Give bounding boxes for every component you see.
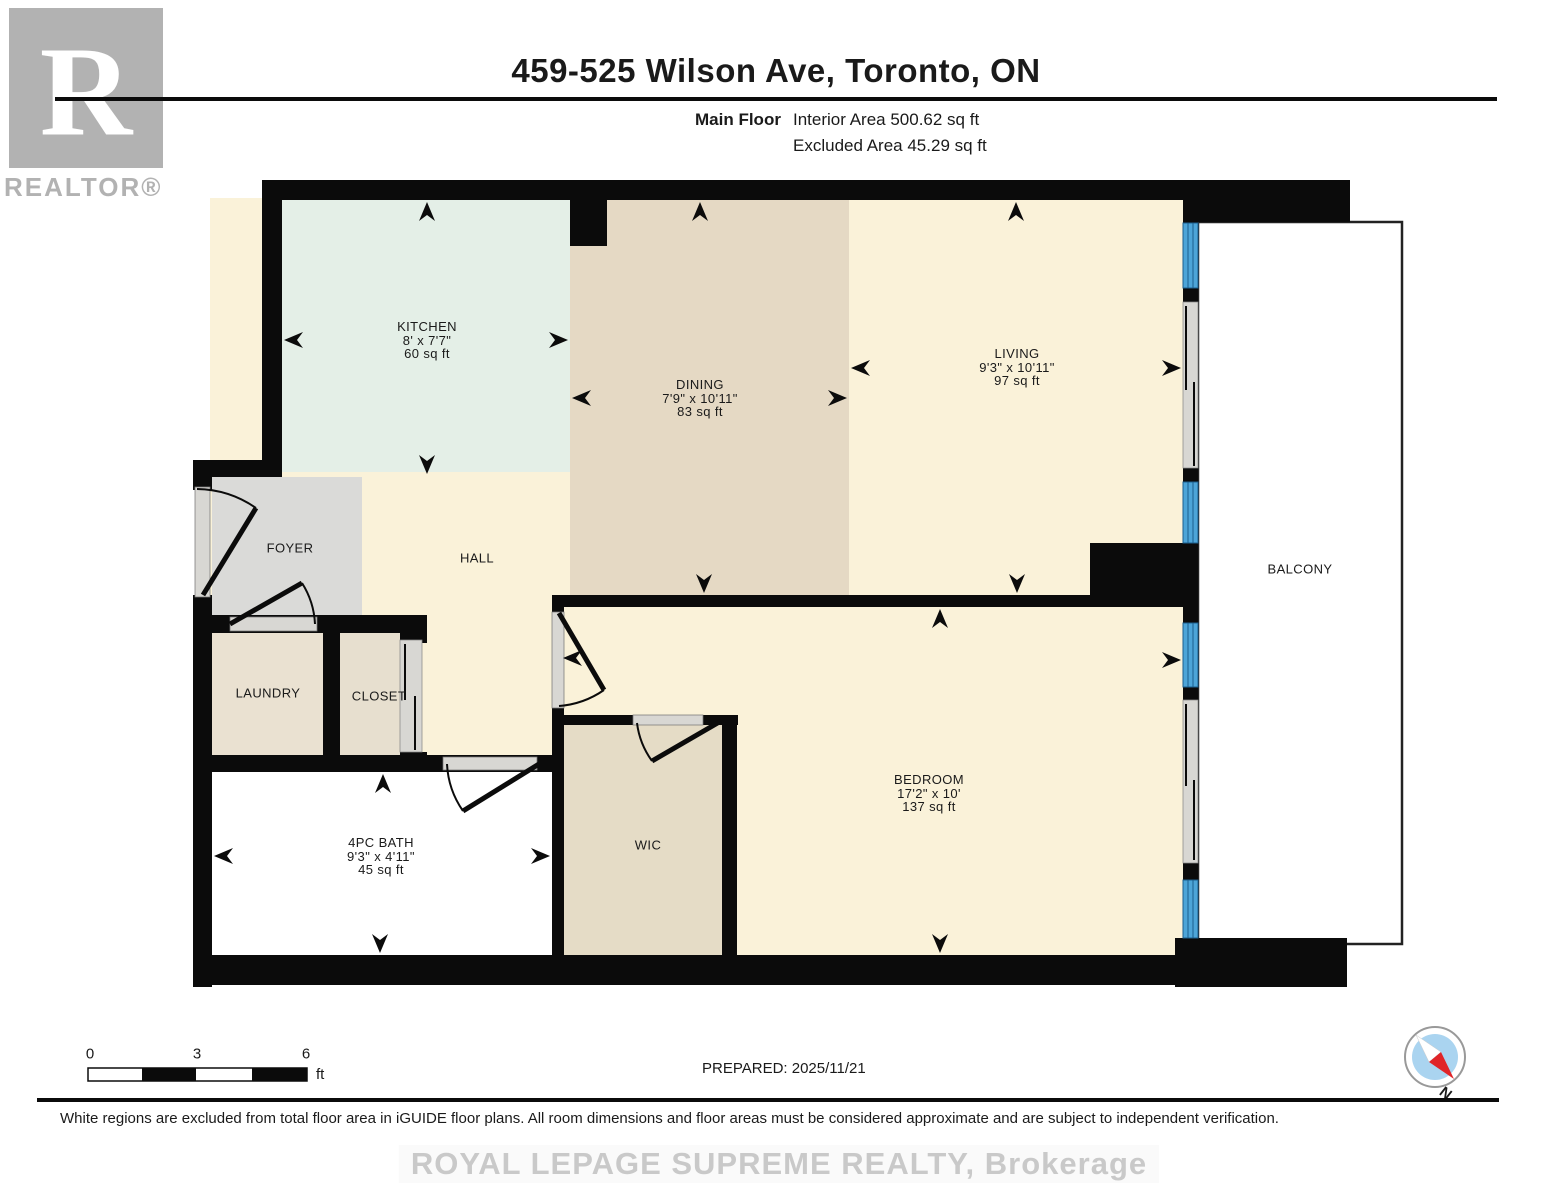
realtor-logo-letter: R — [40, 19, 132, 166]
footer-divider — [37, 1098, 1499, 1102]
hall-name: HALL — [460, 551, 494, 565]
disclaimer-text: White regions are excluded from total fl… — [60, 1110, 1279, 1127]
dining-name: DINING — [662, 378, 738, 392]
wic-name: WIC — [635, 838, 661, 852]
interior-area: Interior Area 500.62 sq ft — [793, 110, 979, 130]
excluded-area: Excluded Area 45.29 sq ft — [793, 136, 987, 156]
balcony-name: BALCONY — [1268, 562, 1333, 576]
dining-area: 83 sq ft — [662, 405, 738, 419]
prepared-date: PREPARED: 2025/11/21 — [702, 1060, 866, 1077]
dining-dims: 7'9" x 10'11" — [662, 391, 738, 405]
page-title: 459-525 Wilson Ave, Toronto, ON — [511, 52, 1040, 90]
brokerage-watermark: ROYAL LEPAGE SUPREME REALTY, Brokerage — [399, 1145, 1159, 1183]
bath-dims: 9'3" x 4'11" — [347, 849, 415, 863]
bath-area: 45 sq ft — [347, 863, 415, 877]
bedroom-area: 137 sq ft — [894, 800, 964, 814]
room-label-bath: 4PC BATH 9'3" x 4'11" 45 sq ft — [347, 836, 415, 877]
bath-name: 4PC BATH — [347, 836, 415, 850]
scale-tick-3: 3 — [193, 1046, 201, 1063]
room-label-wic: WIC — [635, 838, 661, 852]
room-label-closet: CLOSET — [352, 689, 406, 703]
living-area: 97 sq ft — [979, 374, 1055, 388]
bedroom-name: BEDROOM — [894, 773, 964, 787]
room-label-living: LIVING 9'3" x 10'11" 97 sq ft — [979, 347, 1055, 388]
living-dims: 9'3" x 10'11" — [979, 360, 1055, 374]
kitchen-name: KITCHEN — [397, 320, 457, 334]
floorplan-drawing — [0, 0, 1553, 1200]
scale-tick-0: 0 — [86, 1046, 94, 1063]
living-name: LIVING — [979, 347, 1055, 361]
compass-icon — [1405, 1027, 1465, 1087]
scale-tick-6: 6 — [302, 1046, 310, 1063]
closet-name: CLOSET — [352, 689, 406, 703]
room-label-kitchen: KITCHEN 8' x 7'7" 60 sq ft — [397, 320, 457, 361]
room-label-bedroom: BEDROOM 17'2" x 10' 137 sq ft — [894, 773, 964, 814]
floor-label: Main Floor — [695, 110, 781, 130]
kitchen-area: 60 sq ft — [397, 347, 457, 361]
scale-unit: ft — [316, 1066, 324, 1083]
kitchen-dims: 8' x 7'7" — [397, 333, 457, 347]
scale-bar — [88, 1068, 307, 1081]
foyer-name: FOYER — [267, 541, 314, 555]
title-underline — [55, 97, 1497, 101]
bedroom-dims: 17'2" x 10' — [894, 786, 964, 800]
room-label-balcony: BALCONY — [1268, 562, 1333, 576]
laundry-name: LAUNDRY — [236, 686, 301, 700]
room-label-hall: HALL — [460, 551, 494, 565]
room-label-laundry: LAUNDRY — [236, 686, 301, 700]
floorplan-page: R REALTOR® 459-525 Wilson Ave, Toronto, … — [0, 0, 1553, 1200]
room-label-foyer: FOYER — [267, 541, 314, 555]
room-label-dining: DINING 7'9" x 10'11" 83 sq ft — [662, 378, 738, 419]
realtor-logo-word: REALTOR® — [4, 172, 162, 203]
balcony-outline — [1198, 222, 1402, 944]
